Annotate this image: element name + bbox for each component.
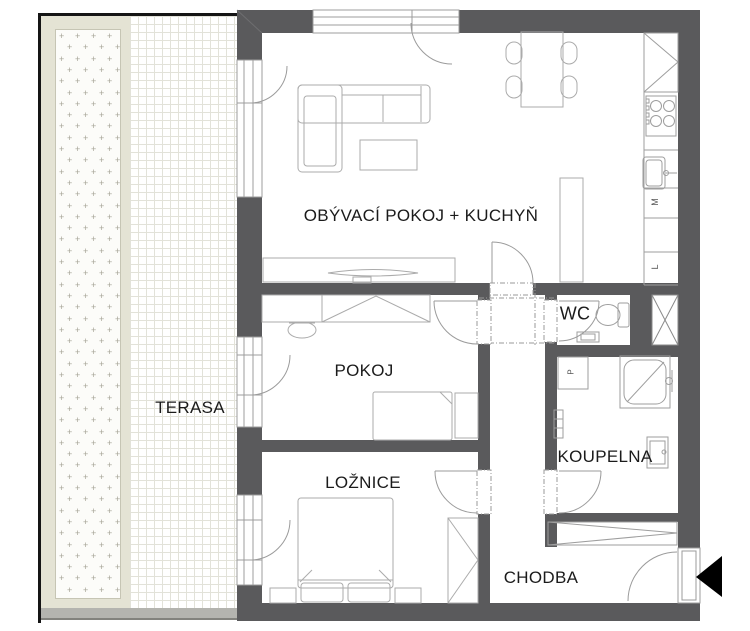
window-living-balcony [237,60,262,197]
wall-segment [678,33,700,548]
dining-chair [506,42,522,64]
window-bedroom-balcony [237,495,262,585]
room-label-terrace: TERASA [155,398,225,418]
room-label-bathroom: KOUPELNA [558,447,653,467]
wall-segment [237,33,262,60]
kitchen-peninsula [560,178,583,282]
desk-and-wardrobe [262,295,430,322]
single-bed [373,392,452,440]
wall-segment [237,585,262,603]
wall-segment [237,427,262,495]
room-label-room: POKOJ [334,361,393,381]
dining-chair [506,76,522,98]
tall-cabinet [644,33,678,92]
wall-segment [478,513,490,603]
bedroom-wardrobe [448,518,478,603]
kitchen-counter [643,33,678,285]
living-corridor-door-arc [492,242,533,283]
desk-chair [288,322,316,338]
bathroom-door-arc [559,471,601,513]
appliance-label-fridge: L [650,264,660,269]
nightstand [270,588,296,603]
wall-segment [237,197,262,337]
living-room-furniture [263,32,583,283]
shower-head [666,378,673,385]
wall-segment [630,295,652,345]
windows [237,10,459,585]
room-label-living: OBÝVACÍ POKOJ + KUCHYŇ [304,206,538,226]
room-door-arc [434,301,477,344]
bedside-shelf [455,393,478,438]
wall-segment [457,10,700,33]
room-label-wc: WC [560,304,591,325]
wall-segment [545,341,557,471]
nightstand [395,588,421,603]
wall-segment [557,513,678,522]
wall-segment [237,603,700,621]
dining-table [521,32,563,107]
wall-segment [237,10,315,33]
wall-segment [262,283,490,295]
floor-plan: ++++++++++++++++++++++++++++++++++++++++… [0,0,750,631]
coffee-table [360,140,417,170]
plan-drawing [0,0,750,631]
bedroom-door-arc [435,471,477,513]
wardrobe-mark [322,296,430,322]
pillow [301,583,343,602]
room-label-hallway: CHODBA [504,568,579,588]
installation-shaft [652,295,678,345]
hallway-wardrobe [548,522,677,545]
sofa [298,85,430,123]
double-bed [298,498,393,588]
appliance-label-dishwasher: M [650,198,660,206]
tv [328,270,418,277]
appliance-label-washer: P [567,369,576,374]
entrance-door-arc [628,552,677,601]
bedroom-furniture [270,498,478,603]
wall-segment [478,344,490,471]
window-room-balcony [237,337,262,427]
toilet-bowl [596,305,620,326]
wall-segment [557,345,678,357]
wall-segment [262,440,478,452]
pillow [348,583,390,602]
window-top [313,10,459,33]
room-label-bedroom: LOŽNICE [325,473,401,493]
pillow-fold [440,392,452,404]
entrance-door-leaf [678,548,700,603]
wall-segment [545,513,557,547]
